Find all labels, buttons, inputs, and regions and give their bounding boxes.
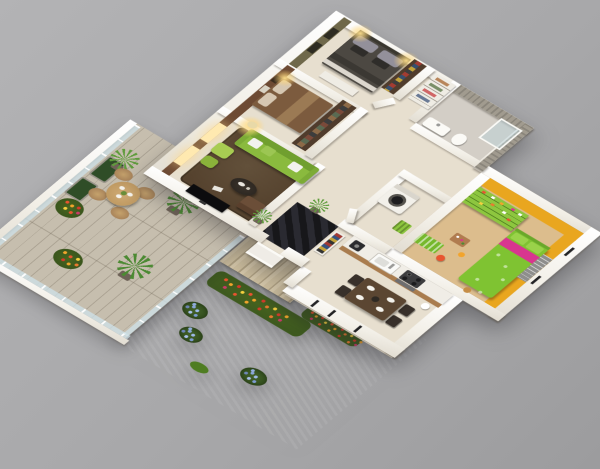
centerpiece [370, 295, 381, 303]
floorplan-3d [0, 0, 600, 462]
blanket-doodles [496, 252, 502, 256]
porch-rail [245, 250, 273, 267]
cup [245, 186, 251, 190]
burner [406, 272, 413, 277]
apartment [0, 0, 600, 462]
tray [237, 180, 246, 186]
bed-throw [276, 90, 320, 125]
shelf-toys [481, 190, 486, 193]
faucet [435, 122, 441, 126]
play-table-items [456, 235, 460, 238]
sink-basin [374, 256, 391, 267]
plate [365, 284, 376, 291]
render-canvas: Isometric 3D cutaway floor plan render o… [0, 0, 600, 469]
sink-faucet [388, 263, 395, 269]
coffee-pot [353, 243, 360, 248]
